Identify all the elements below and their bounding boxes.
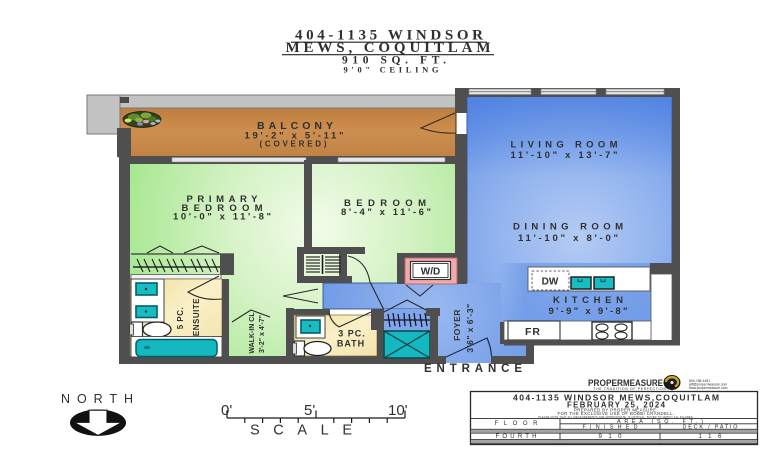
svg-text:SCALE: SCALE <box>250 423 352 439</box>
svg-text:NORTH: NORTH <box>61 392 133 406</box>
svg-text:W/D: W/D <box>421 267 440 278</box>
svg-text:5 PC.: 5 PC. <box>176 307 185 330</box>
svg-text:BATH: BATH <box>337 339 365 349</box>
svg-text:5': 5' <box>304 402 315 419</box>
svg-text:WALK-IN CL: WALK-IN CL <box>249 312 256 354</box>
svg-text:9'0" CEILING: 9'0" CEILING <box>344 65 439 75</box>
svg-text:3 PC.: 3 PC. <box>338 329 366 339</box>
svg-text:DW: DW <box>542 277 559 288</box>
svg-text:THE TRADITION OF PERFECTION: THE TRADITION OF PERFECTION <box>593 387 666 391</box>
svg-text:FOYER: FOYER <box>452 309 462 341</box>
svg-text:ENTRANCE: ENTRANCE <box>424 363 522 375</box>
svg-text:FR: FR <box>525 326 541 338</box>
svg-text:ENSUITE: ENSUITE <box>192 298 201 336</box>
svg-text:9'-9" x 9'-8": 9'-9" x 9'-8" <box>549 306 628 317</box>
svg-text:(COVERED): (COVERED) <box>260 140 327 149</box>
svg-text:3'-2" x 4'-7": 3'-2" x 4'-7" <box>259 315 266 353</box>
svg-text:www.propermeasure.com: www.propermeasure.com <box>689 386 728 390</box>
